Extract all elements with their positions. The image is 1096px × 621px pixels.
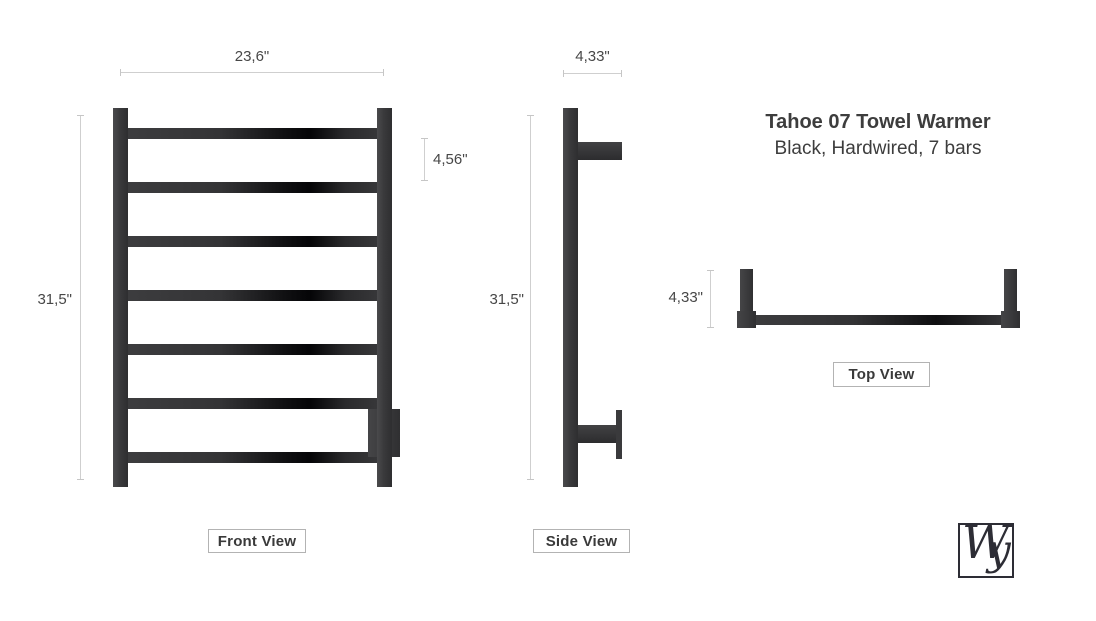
side-height-dimension-label: 31,5" — [470, 291, 524, 308]
front-height-dimension-label: 31,5" — [18, 291, 72, 308]
technical-drawing-canvas: 23,6" 31,5" 4,56" Front View 4,33" 31,5" — [0, 0, 1096, 621]
product-subtitle: Black, Hardwired, 7 bars — [730, 138, 1026, 160]
side-post — [563, 108, 578, 487]
product-title: Tahoe 07 Towel Warmer — [730, 111, 1026, 134]
front-width-dimension-line — [120, 72, 384, 73]
side-top-bracket — [578, 142, 622, 160]
brand-logo-letter-y: y — [987, 529, 1011, 571]
side-bottom-bracket — [578, 425, 618, 443]
front-view-bar — [120, 128, 385, 139]
front-bar-spacing-dimension-line — [424, 138, 425, 181]
front-view-bar — [120, 290, 385, 301]
top-depth-dimension-label: 4,33" — [649, 289, 703, 306]
top-left-post-section — [737, 311, 756, 328]
front-view-bar — [120, 452, 385, 463]
top-bar — [750, 315, 1008, 325]
side-depth-dimension-line — [563, 73, 622, 74]
top-right-bracket — [1004, 269, 1017, 315]
front-view-bar — [120, 236, 385, 247]
front-left-post — [113, 108, 128, 487]
side-view-caption: Side View — [533, 529, 630, 553]
top-left-bracket — [740, 269, 753, 315]
front-view-bar — [120, 182, 385, 193]
product-title-block: Tahoe 07 Towel Warmer Black, Hardwired, … — [730, 111, 1026, 160]
front-bar-spacing-dimension-label: 4,56" — [433, 151, 468, 168]
front-view-bar — [120, 398, 385, 409]
top-view-caption: Top View — [833, 362, 930, 387]
front-height-dimension-line — [80, 115, 81, 480]
front-right-post — [377, 108, 392, 487]
front-view-caption: Front View — [208, 529, 306, 553]
top-depth-dimension-line — [710, 270, 711, 328]
side-height-dimension-line — [530, 115, 531, 480]
top-right-post-section — [1001, 311, 1020, 328]
front-view-bar — [120, 344, 385, 355]
side-depth-dimension-label: 4,33" — [563, 48, 622, 65]
side-bottom-bracket-plate — [616, 410, 622, 459]
front-width-dimension-label: 23,6" — [212, 48, 292, 65]
brand-logo: W y — [958, 523, 1014, 578]
